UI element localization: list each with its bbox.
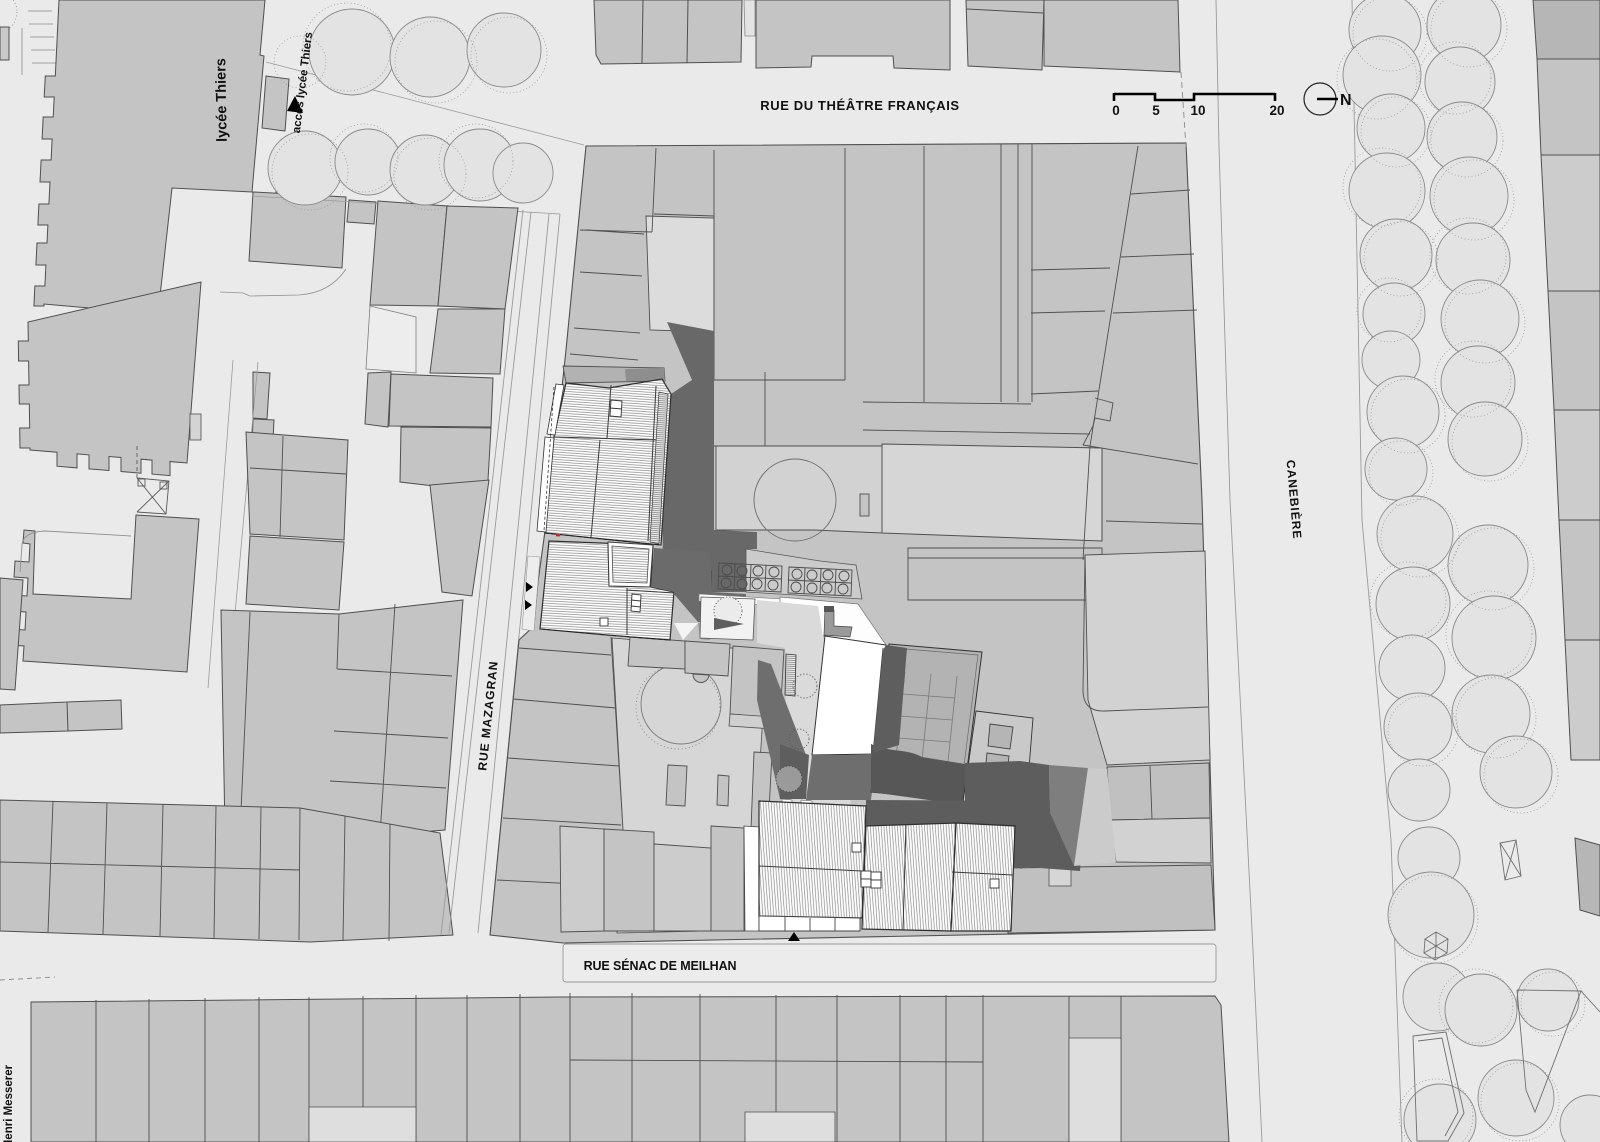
- svg-text:lycée Thiers: lycée Thiers: [213, 58, 230, 142]
- svg-text:0: 0: [1112, 103, 1120, 118]
- svg-text:Henri Messerer: Henri Messerer: [3, 1064, 15, 1142]
- svg-text:RUE DU THÉÂTRE FRANÇAIS: RUE DU THÉÂTRE FRANÇAIS: [760, 98, 959, 113]
- svg-text:5: 5: [1152, 103, 1160, 118]
- svg-text:10: 10: [1190, 103, 1205, 118]
- svg-text:N: N: [1340, 92, 1352, 109]
- svg-text:20: 20: [1269, 103, 1284, 118]
- svg-text:RUE SÉNAC DE MEILHAN: RUE SÉNAC DE MEILHAN: [584, 958, 737, 973]
